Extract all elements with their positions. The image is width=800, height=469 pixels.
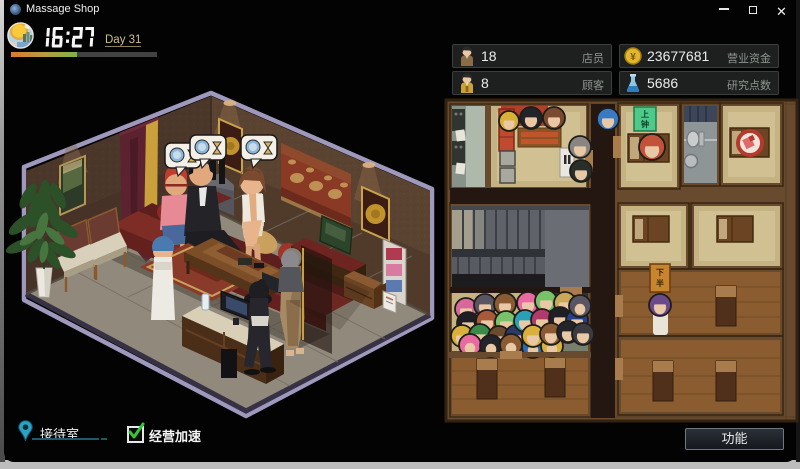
svg-text:下: 下 xyxy=(656,268,664,277)
svg-text:上: 上 xyxy=(641,109,649,119)
svg-text:半: 半 xyxy=(656,278,664,288)
svg-text:钟: 钟 xyxy=(641,119,649,129)
svg-text:¥: ¥ xyxy=(630,52,636,63)
